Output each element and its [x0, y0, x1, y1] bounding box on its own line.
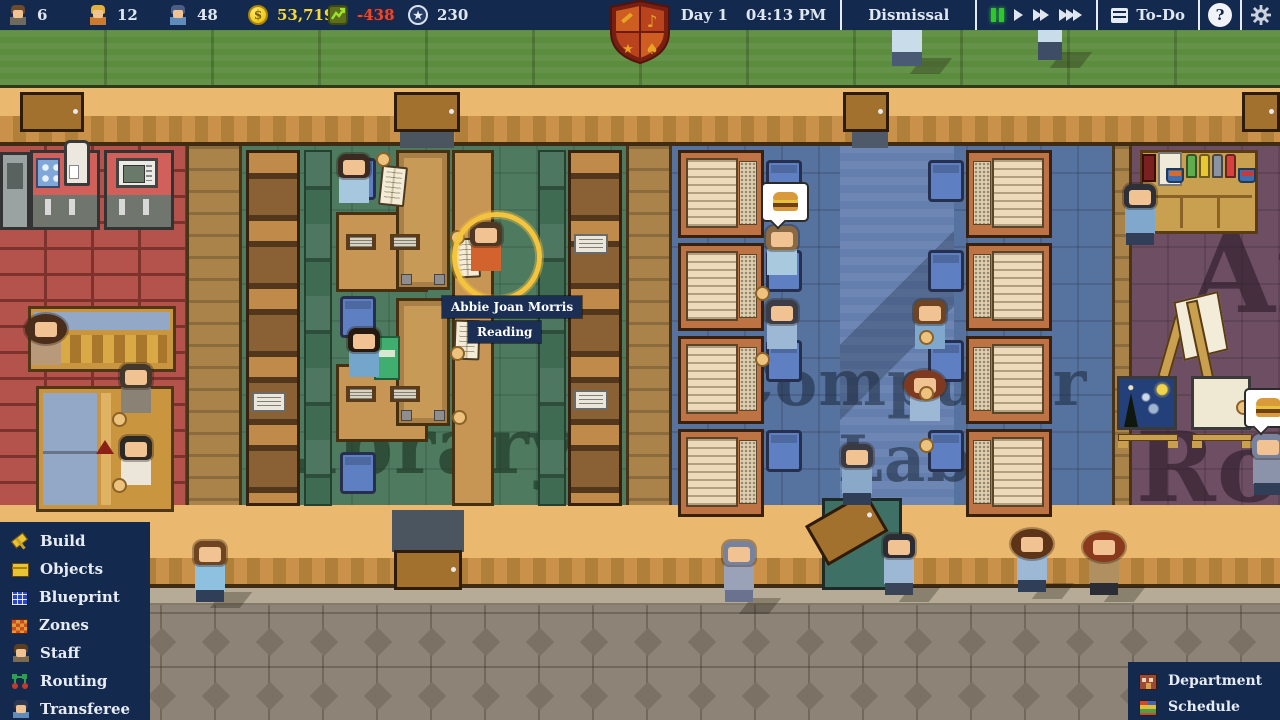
zones-grid-icon	[11, 619, 28, 634]
gear-icon	[1251, 5, 1271, 25]
status-dot	[376, 152, 391, 167]
stat-money[interactable]: 53,719	[240, 5, 320, 25]
teacher[interactable]	[1122, 184, 1158, 246]
objects-crate-icon	[11, 560, 29, 578]
burger-icon	[1256, 398, 1280, 417]
chair[interactable]	[340, 452, 376, 494]
game-clock: Y1 Day 1 04:13 PM	[650, 6, 841, 24]
student[interactable]	[1250, 434, 1280, 496]
oven[interactable]	[0, 152, 30, 230]
burger-icon	[773, 192, 798, 211]
transferee-person-icon	[11, 700, 29, 718]
todo-list-icon	[1111, 8, 1128, 23]
marker-arrow	[96, 440, 114, 454]
menu-item-schedule[interactable]: Schedule	[1128, 694, 1280, 720]
paint-bottle	[1225, 154, 1236, 178]
chair[interactable]	[928, 160, 964, 202]
tooltip-character-activity: Reading	[468, 321, 541, 343]
status-dot	[450, 346, 465, 361]
shelf-label	[574, 234, 608, 254]
coffee-machine[interactable]	[64, 140, 90, 186]
selection-ring	[452, 212, 542, 302]
music-glyph: ♪	[647, 12, 658, 32]
painting-starry-night	[1117, 376, 1177, 430]
money-icon	[248, 5, 268, 25]
desk-plate	[390, 386, 420, 402]
bookshelf[interactable]	[538, 150, 566, 506]
status-dot	[112, 412, 127, 427]
build-menu-panel: Build Objects Blueprint Zones Staff Rout…	[0, 522, 150, 720]
bookshelf-carrels[interactable]	[568, 150, 622, 506]
door[interactable]	[394, 550, 462, 590]
blueprint-grid-icon	[11, 591, 28, 606]
leaf-glyph: ♠	[645, 40, 658, 58]
time-label: 04:13 PM	[746, 6, 826, 24]
easel[interactable]	[1152, 296, 1232, 380]
canvas-stand[interactable]	[1116, 376, 1180, 448]
interior-wall	[186, 146, 242, 505]
menu-item-transferee[interactable]: Transferee	[0, 695, 150, 720]
easel-canvas	[1173, 291, 1228, 361]
speed-controls	[977, 0, 1096, 30]
status-dot	[919, 386, 934, 401]
door-mat	[400, 132, 454, 148]
day-label: Day 1	[681, 6, 728, 24]
cashflow-icon	[328, 5, 348, 25]
janitor[interactable]	[721, 541, 757, 603]
desk-plate	[390, 234, 420, 250]
status-dot	[452, 410, 467, 425]
teacher[interactable]	[28, 316, 64, 366]
menu-item-staff[interactable]: Staff	[0, 639, 150, 667]
door[interactable]	[1242, 92, 1280, 132]
computer-desk[interactable]	[678, 150, 764, 238]
computer-desk[interactable]	[678, 336, 764, 424]
menu-item-blueprint[interactable]: Blueprint	[0, 583, 150, 611]
stat-value: 12	[117, 6, 138, 24]
stat-value: 230	[437, 6, 468, 24]
bookshelf[interactable]	[304, 150, 332, 506]
student[interactable]	[346, 328, 382, 378]
student[interactable]	[839, 444, 875, 506]
student[interactable]	[764, 300, 800, 350]
microwave[interactable]	[116, 158, 158, 188]
menu-item-department[interactable]: Department	[1128, 668, 1280, 694]
settings-button[interactable]	[1242, 5, 1280, 25]
door[interactable]	[394, 92, 460, 132]
computer-desk[interactable]	[678, 243, 764, 331]
stat-cashflow[interactable]: -438	[320, 5, 400, 25]
help-icon: ?	[1208, 3, 1232, 27]
stat-value: 6	[37, 6, 47, 24]
walkway[interactable]	[0, 588, 1280, 720]
status-dot	[919, 438, 934, 453]
stat-value: 48	[197, 6, 218, 24]
desk-plate	[346, 386, 376, 402]
period-label: Dismissal	[842, 6, 975, 24]
menu-item-objects[interactable]: Objects	[0, 555, 150, 583]
stat-value: -438	[357, 6, 395, 24]
hunger-bubble	[761, 182, 809, 222]
top-building-wall	[0, 88, 1280, 146]
schedule-calendar-icon	[1139, 700, 1157, 716]
tooltip-character-name: Abbie Joan Morris	[442, 296, 582, 318]
stat-teachers[interactable]: 6	[0, 5, 80, 25]
student[interactable]	[764, 226, 800, 276]
menu-label: Schedule	[1168, 699, 1240, 715]
student-icon	[88, 5, 108, 25]
desk-plate	[346, 234, 376, 250]
menu-label: Objects	[40, 560, 103, 578]
doorway-floor	[392, 510, 464, 552]
status-dot	[112, 478, 127, 493]
help-button[interactable]: ?	[1200, 3, 1240, 27]
hud-right-group: Y1 Day 1 04:13 PM Dismissal To-Do ?	[650, 0, 1280, 30]
student[interactable]	[1086, 534, 1122, 596]
student[interactable]	[336, 154, 372, 204]
game-viewport[interactable]: Library Computer Lab Art Room	[0, 0, 1280, 720]
staff-person-icon	[11, 644, 29, 662]
bookshelf-carrels[interactable]	[246, 150, 300, 506]
door[interactable]	[20, 92, 84, 132]
paint-bucket	[1238, 168, 1256, 183]
door-mat	[852, 132, 888, 148]
todo-button[interactable]: To-Do	[1098, 6, 1198, 24]
todo-label: To-Do	[1136, 6, 1185, 24]
computer-desk[interactable]	[966, 336, 1052, 424]
paint-bottle	[1186, 154, 1197, 178]
cup-rack[interactable]	[36, 158, 60, 188]
chair[interactable]	[928, 430, 964, 472]
build-hammer-icon	[11, 532, 29, 550]
pause-button[interactable]	[991, 8, 1004, 22]
door[interactable]	[843, 92, 889, 132]
star-glyph: ★	[622, 42, 634, 57]
routing-network-icon	[11, 672, 29, 690]
stand-legs	[1118, 434, 1178, 448]
menu-item-routing[interactable]: Routing	[0, 667, 150, 695]
interior-wall	[626, 146, 672, 505]
stats-group: 6 12 48 53,719 -438 ★ 230	[0, 0, 480, 30]
teacher-icon	[8, 5, 28, 25]
computer-desk[interactable]	[966, 150, 1052, 238]
stand-legs	[1192, 434, 1252, 448]
computer-desk[interactable]	[678, 429, 764, 517]
book-stack	[1142, 154, 1156, 182]
status-dot	[755, 286, 770, 301]
worker-icon	[168, 5, 188, 25]
chair[interactable]	[928, 250, 964, 292]
stat-workers[interactable]: 48	[160, 5, 240, 25]
manage-menu-panel: Department Schedule	[1128, 662, 1280, 720]
shelf-label	[252, 392, 286, 412]
menu-label: Blueprint	[39, 588, 120, 606]
menu-label: Staff	[40, 644, 80, 662]
menu-label: Transferee	[40, 700, 130, 718]
teacher[interactable]	[118, 364, 154, 414]
points-star-icon: ★	[408, 5, 428, 25]
status-dot	[919, 330, 934, 345]
chair[interactable]	[766, 430, 802, 472]
paint-bottle	[1199, 154, 1210, 178]
stat-points[interactable]: ★ 230	[400, 5, 480, 25]
paint-bottle	[1212, 154, 1223, 178]
play-button[interactable]	[1014, 9, 1023, 21]
computer-desk[interactable]	[966, 429, 1052, 517]
school-crest[interactable]: ♪ ★ ♠	[606, 0, 674, 64]
menu-item-zones[interactable]: Zones	[0, 611, 150, 639]
status-dot	[755, 352, 770, 367]
student[interactable]	[192, 541, 228, 603]
open-book	[378, 165, 408, 207]
fastest-forward-button[interactable]	[1059, 9, 1082, 21]
computer-desk[interactable]	[966, 243, 1052, 331]
stat-students[interactable]: 12	[80, 5, 160, 25]
student[interactable]	[881, 534, 917, 596]
menu-label: Department	[1168, 673, 1262, 689]
menu-item-build[interactable]: Build	[0, 527, 150, 555]
paint-bucket	[1166, 168, 1184, 183]
menu-label: Zones	[39, 616, 89, 634]
hunger-bubble	[1244, 388, 1280, 428]
fast-forward-button[interactable]	[1033, 9, 1049, 21]
shelf-label	[574, 390, 608, 410]
department-building-icon	[1139, 674, 1157, 690]
menu-label: Routing	[40, 672, 107, 690]
student[interactable]	[1014, 531, 1050, 593]
menu-label: Build	[40, 532, 85, 550]
